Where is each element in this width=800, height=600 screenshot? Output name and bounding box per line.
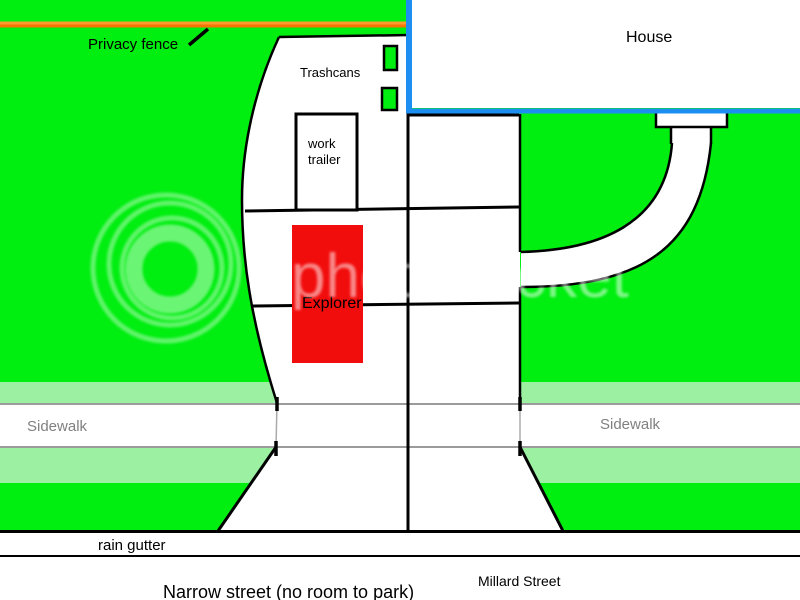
trashcan-2 — [382, 88, 397, 110]
house-label: House — [626, 29, 672, 46]
walkway-neck — [671, 126, 711, 144]
work-trailer-label-line1: work — [307, 136, 336, 151]
sidewalk-right-label: Sidewalk — [600, 416, 661, 433]
property-map: Privacy fence Trashcans work trailer Exp… — [0, 0, 800, 600]
map-drawing: Privacy fence Trashcans work trailer Exp… — [0, 0, 800, 600]
millard-street-label: Millard Street — [478, 573, 561, 589]
work-trailer-label-line2: trailer — [308, 152, 341, 167]
watermark-text: photobucket — [291, 242, 629, 311]
narrow-street-label: Narrow street (no room to park) — [163, 582, 414, 600]
privacy-fence-stripe-bottom — [0, 25, 406, 28]
privacy-fence-stripe-top — [0, 22, 406, 25]
privacy-fence-label: Privacy fence — [88, 36, 178, 53]
trashcan-1 — [384, 46, 397, 70]
sidewalk-left-label: Sidewalk — [27, 418, 88, 435]
house-area — [410, 0, 800, 108]
trashcans-label: Trashcans — [300, 65, 361, 80]
rain-gutter-label: rain gutter — [98, 537, 166, 554]
